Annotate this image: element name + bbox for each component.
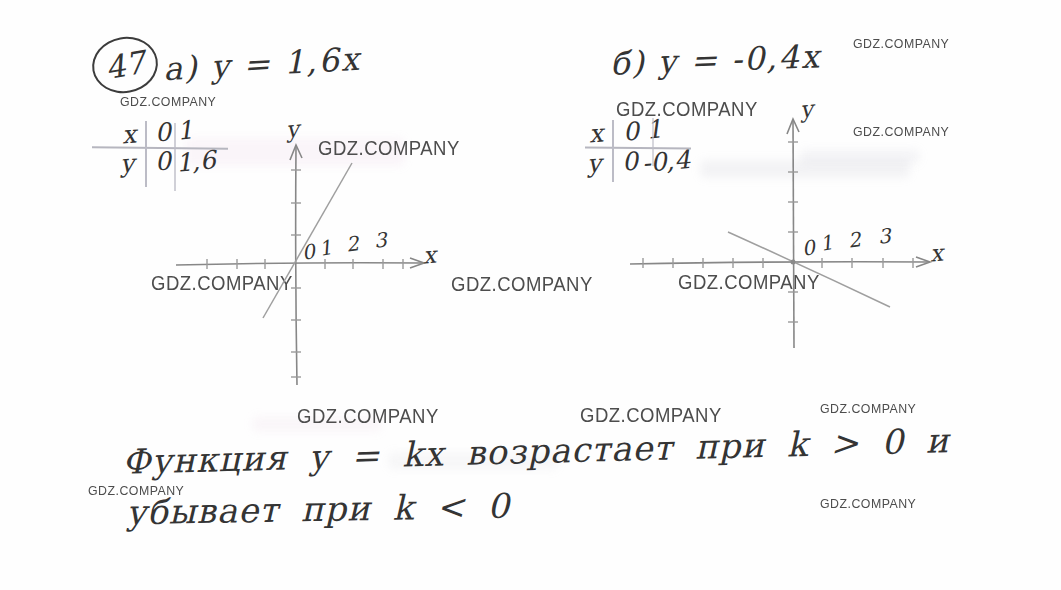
y-axis — [793, 120, 794, 348]
table-divider — [612, 120, 614, 182]
part-a-title: а) y = 1,6x — [162, 43, 361, 85]
table-cell: y — [586, 151, 601, 177]
table-cell: x — [121, 122, 137, 148]
x-axis — [176, 263, 422, 265]
x-axis-label: x — [422, 244, 437, 268]
watermark: GDZ.COMPANY — [580, 406, 722, 426]
table-cell: x — [588, 121, 604, 147]
x-tick-label: 0 — [801, 237, 816, 259]
watermark: GDZ.COMPANY — [853, 37, 949, 50]
conclusion-line-1: Функция y = kx возрастает при k > 0 и — [122, 423, 950, 479]
x-tick-label: 3 — [877, 225, 892, 246]
graph-b: y x 0 1 2 3 — [618, 96, 963, 366]
problem-number-circle: 47 — [88, 32, 163, 99]
y-axis — [296, 146, 297, 385]
graph-a: y x 0 1 2 3 — [160, 108, 445, 393]
watermark: GDZ.COMPANY — [451, 275, 593, 295]
watermark: GDZ.COMPANY — [120, 95, 216, 108]
part-b-title: б) y = -0,4x — [610, 40, 822, 79]
worksheet-scan: 47 а) y = 1,6x б) y = -0,4x GDZ.COMPANY … — [0, 0, 1061, 590]
x-axis-label: x — [929, 242, 944, 266]
x-tick-label: 3 — [373, 229, 388, 250]
conclusion-line-2: убывает при k < 0 — [126, 489, 510, 530]
table-divider — [145, 121, 147, 187]
y-axis-label: y — [285, 117, 300, 141]
watermark: GDZ.COMPANY — [297, 407, 439, 427]
graph-b-canvas — [618, 96, 963, 366]
origin-point — [791, 260, 796, 265]
x-tick-label: 2 — [345, 233, 360, 255]
watermark: GDZ.COMPANY — [820, 402, 916, 415]
problem-number: 47 — [102, 44, 147, 86]
x-tick-label: 0 — [301, 241, 316, 263]
table-cell: y — [119, 151, 134, 177]
y-axis-label: y — [799, 97, 814, 121]
x-tick-label: 2 — [847, 229, 862, 251]
watermark: GDZ.COMPANY — [820, 497, 916, 510]
